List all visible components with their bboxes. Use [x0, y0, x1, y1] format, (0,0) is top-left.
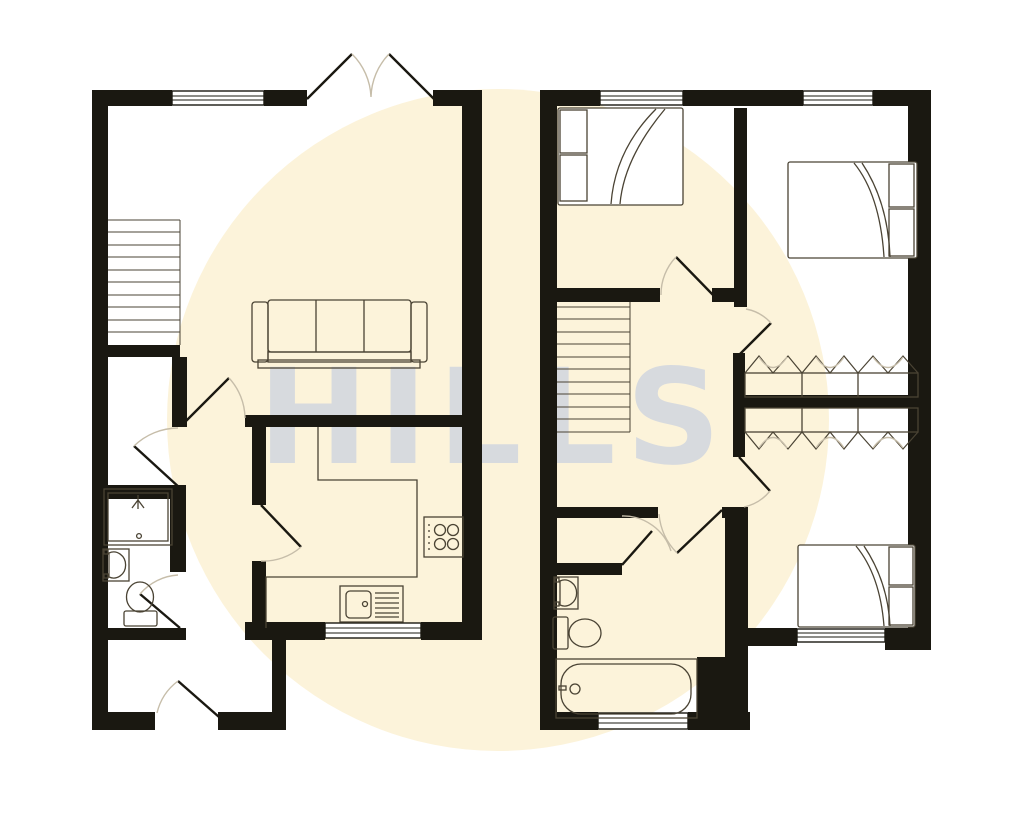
bathtub	[556, 659, 697, 718]
bed-1	[558, 108, 683, 205]
staircase-left	[108, 220, 180, 345]
floorplan-drawing	[0, 0, 1024, 825]
walls-left-unit	[92, 90, 482, 730]
toilet-right	[553, 617, 601, 649]
hob	[424, 517, 463, 557]
door-swing-bathroom	[622, 510, 722, 565]
wash-basin-right	[554, 577, 578, 609]
sofa	[252, 300, 427, 368]
window	[325, 623, 421, 638]
door-swing-kitchen	[261, 505, 301, 561]
door-swing-bedroom-1	[661, 257, 714, 296]
staircase-right	[557, 302, 630, 432]
shower-head-icon	[132, 495, 144, 538]
window	[172, 91, 264, 105]
floorplan-canvas: HILLS	[0, 0, 1024, 825]
french-doors	[307, 54, 434, 99]
door-swing-front-entrance	[157, 681, 219, 717]
toilet-left	[124, 582, 157, 626]
bed-3	[798, 545, 915, 627]
window	[803, 91, 873, 105]
kitchen-sink	[340, 586, 403, 622]
door-swing-living-room	[186, 378, 245, 421]
bed-2	[788, 162, 917, 258]
window	[600, 91, 683, 105]
window	[598, 713, 688, 729]
door-swing-bedroom-2	[740, 309, 771, 354]
door-swing-hall	[134, 428, 181, 489]
door-swing-bedroom-3	[739, 457, 770, 507]
window	[797, 629, 885, 642]
